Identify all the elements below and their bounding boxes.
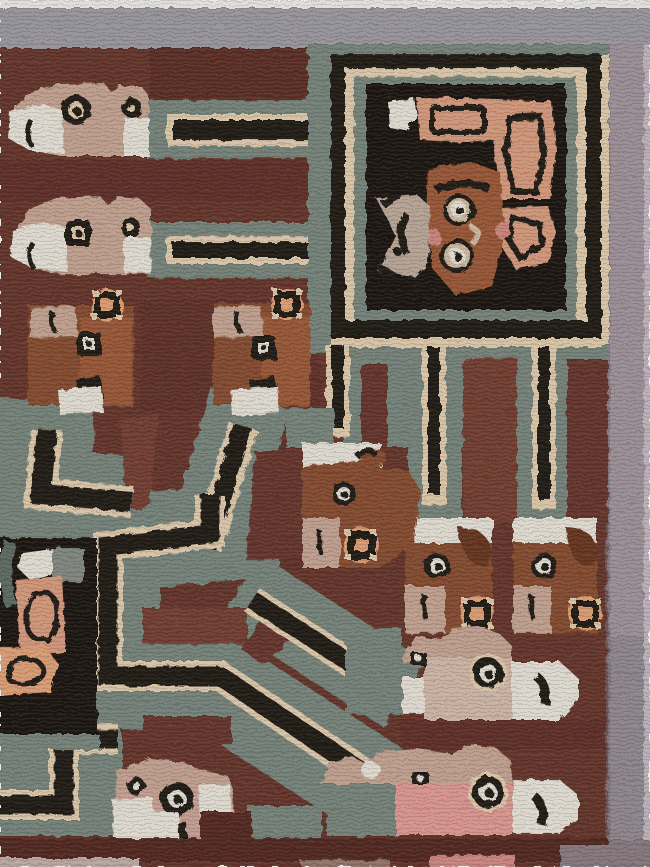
textile-artwork — [0, 0, 650, 867]
grain-overlay — [0, 0, 650, 867]
